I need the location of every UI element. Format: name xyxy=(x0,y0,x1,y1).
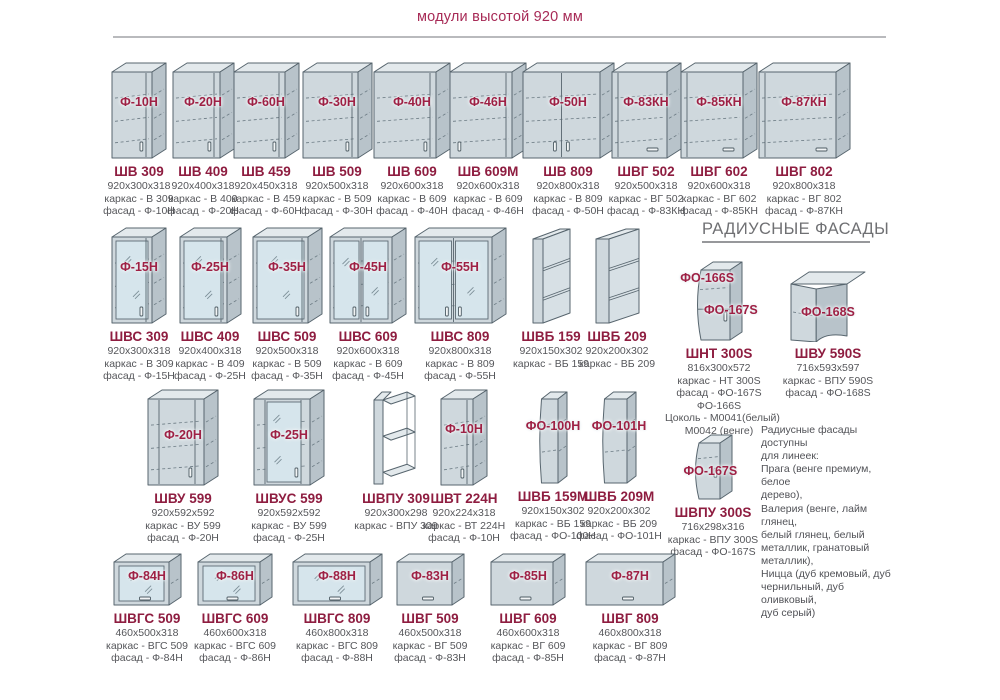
module-spec-line: 460x500x318 xyxy=(376,627,484,640)
cabinet-illustration: Ф-87Н xyxy=(576,552,684,607)
module-card: Ф-85НШВГ 609460x600x318каркас - ВГ 609фа… xyxy=(474,552,582,665)
module-code: ШВБ 209 xyxy=(563,329,671,344)
module-spec-line: фасад - ФО-168S xyxy=(774,387,882,400)
facade-label: Ф-88Н xyxy=(318,569,356,583)
module-spec-line: каркас - ВГ 809 xyxy=(576,640,684,653)
module-specs: 460x800x318каркас - ВГС 809фасад - Ф-88Н xyxy=(283,627,391,665)
header-divider xyxy=(113,36,886,38)
module-code: ШВГС 609 xyxy=(181,611,289,626)
note-line: металлик, гранатовый xyxy=(761,542,901,555)
module-card: ФО-167SШВПУ 300S716x298x316каркас - ВПУ … xyxy=(659,413,767,559)
module-spec-line: фасад - Ф-83Н xyxy=(376,652,484,665)
module-spec-line: ФО-166S xyxy=(665,400,773,413)
facade-label: Ф-25Н xyxy=(191,260,229,274)
cabinet-illustration: ФО-168S xyxy=(774,252,882,342)
module-card: Ф-87НШВГ 809460x800x318каркас - ВГ 809фа… xyxy=(576,552,684,665)
note-line: для линеек: xyxy=(761,450,901,463)
module-spec-line: 460x600x318 xyxy=(474,627,582,640)
note-line: Радиусные фасады доступны xyxy=(761,424,901,450)
facade-label: ФО-168S xyxy=(801,305,855,319)
facade-label: Ф-15Н xyxy=(120,260,158,274)
facade-label: Ф-60Н xyxy=(247,95,285,109)
facade-label: Ф-87КН xyxy=(781,95,826,109)
module-card: Ф-25НШВУС 599920x592x592каркас - ВУ 599ф… xyxy=(235,385,343,545)
facade-label: Ф-45Н xyxy=(349,260,387,274)
module-spec-line: каркас - ВБ 209 xyxy=(565,518,673,531)
module-spec-line: 816x300x572 xyxy=(665,362,773,375)
module-spec-line: каркас - ВПУ 300S xyxy=(659,534,767,547)
module-code: ШВУ 599 xyxy=(129,491,237,506)
facade-label: Ф-87Н xyxy=(611,569,649,583)
module-card: ШВБ 209920x200x302каркас - ВБ 209 xyxy=(563,225,671,370)
module-spec-line: 460x600x318 xyxy=(181,627,289,640)
module-spec-line: 460x800x318 xyxy=(283,627,391,640)
module-code: ШВПУ 300S xyxy=(659,505,767,520)
note-line: Валерия (венге, лайм глянец, xyxy=(761,503,901,529)
cabinet-illustration: ФО-166SФО-167S xyxy=(665,252,773,342)
cabinet-illustration: Ф-86Н xyxy=(181,552,289,607)
module-spec-line: каркас - ВГС 609 xyxy=(181,640,289,653)
note-line: металлик), xyxy=(761,555,901,568)
note-line: дерево), xyxy=(761,489,901,502)
catalog-page: { "header": { "title": "модули высотой 9… xyxy=(0,0,1000,700)
cabinet-glass-double-door-icon xyxy=(328,226,408,325)
facade-label: ФО-167S xyxy=(704,303,758,317)
module-spec-line: каркас - ВУ 599 xyxy=(235,520,343,533)
note-line: белый глянец, белый xyxy=(761,529,901,542)
module-spec-line: 920x592x592 xyxy=(129,507,237,520)
module-spec-line: каркас - НТ 300S xyxy=(665,375,773,388)
module-code: ШВУС 599 xyxy=(235,491,343,506)
module-spec-line: фасад - Ф-55Н xyxy=(406,370,514,383)
module-spec-line: каркас - ВГ 609 xyxy=(474,640,582,653)
facade-label: Ф-85Н xyxy=(509,569,547,583)
module-spec-line: фасад - Ф-86Н xyxy=(181,652,289,665)
module-spec-line: 920x200x302 xyxy=(565,505,673,518)
module-specs: 920x800x318каркас - ВГ 802фасад - Ф-87КН xyxy=(750,180,858,218)
module-spec-line: фасад - Ф-25Н xyxy=(235,532,343,545)
module-spec-line: 920x200x302 xyxy=(563,345,671,358)
module-code: ШНТ 300S xyxy=(665,346,773,361)
module-spec-line: каркас - ВПУ 590S xyxy=(774,375,882,388)
note-line: чернильный, дуб оливковый, xyxy=(761,581,901,607)
cabinet-illustration: Ф-87КН xyxy=(750,58,858,160)
module-spec-line: фасад - Ф-20Н xyxy=(129,532,237,545)
cabinet-glass-double-door-icon xyxy=(413,226,508,325)
note-line: дуб серый) xyxy=(761,607,901,620)
module-card: Ф-88НШВГС 809460x800x318каркас - ВГС 809… xyxy=(283,552,391,665)
radius-availability-note: Радиусные фасады доступныдля линеек:Праг… xyxy=(761,424,901,620)
facade-label: Ф-83КН xyxy=(623,95,668,109)
module-code: ШВГ 609 xyxy=(474,611,582,626)
module-card: Ф-83НШВГ 509460x500x318каркас - ВГ 509фа… xyxy=(376,552,484,665)
module-spec-line: фасад - Ф-87Н xyxy=(576,652,684,665)
note-line: Прага (венге премиум, белое xyxy=(761,463,901,489)
module-spec-line: каркас - ВУ 599 xyxy=(129,520,237,533)
module-specs: 920x592x592каркас - ВУ 599фасад - Ф-20Н xyxy=(129,507,237,545)
facade-label: Ф-25Н xyxy=(270,428,308,442)
facade-label: Ф-35Н xyxy=(268,260,306,274)
module-spec-line: фасад - Ф-88Н xyxy=(283,652,391,665)
module-spec-line: 716x593x597 xyxy=(774,362,882,375)
facade-label: Ф-40Н xyxy=(393,95,431,109)
module-spec-line: 920x592x592 xyxy=(235,507,343,520)
cabinet-door-horizontal-handle-icon xyxy=(757,61,852,160)
facade-label: Ф-10Н xyxy=(445,422,483,436)
module-card: ФО-166SФО-167SШНТ 300S816x300x572каркас … xyxy=(665,252,773,438)
facade-label: Ф-84Н xyxy=(128,569,166,583)
module-specs: 920x200x302каркас - ВБ 209 xyxy=(563,345,671,370)
module-specs: 920x592x592каркас - ВУ 599фасад - Ф-25Н xyxy=(235,507,343,545)
cabinet-illustration: Ф-85Н xyxy=(474,552,582,607)
cabinet-door-horizontal-handle-icon xyxy=(679,61,759,160)
module-code: ШВГ 809 xyxy=(576,611,684,626)
page-title: модули высотой 920 мм xyxy=(0,9,1000,25)
cabinet-illustration: ФО-167S xyxy=(659,413,767,501)
cabinet-illustration: Ф-83Н xyxy=(376,552,484,607)
facade-label: Ф-50Н xyxy=(549,95,587,109)
cabinet-open-shelves-icon xyxy=(594,227,641,325)
module-spec-line: фасад - Ф-87КН xyxy=(750,205,858,218)
module-spec-line: каркас - ВБ 209 xyxy=(563,358,671,371)
module-spec-line: 460x800x318 xyxy=(576,627,684,640)
cabinet-illustration: Ф-88Н xyxy=(283,552,391,607)
facade-label: ФО-166S xyxy=(680,271,734,285)
module-spec-line: 920x800x318 xyxy=(750,180,858,193)
facade-label: Ф-86Н xyxy=(216,569,254,583)
cabinet-illustration: Ф-25Н xyxy=(235,385,343,487)
module-code: ШВУ 590S xyxy=(774,346,882,361)
cabinet-illustration: Ф-20Н xyxy=(129,385,237,487)
facade-label: Ф-55Н xyxy=(441,260,479,274)
module-card: Ф-20НШВУ 599920x592x592каркас - ВУ 599фа… xyxy=(129,385,237,545)
module-specs: 716x593x597каркас - ВПУ 590Sфасад - ФО-1… xyxy=(774,362,882,400)
cabinet-single-door-icon xyxy=(439,388,489,487)
module-card: ФО-101НШВБ 209М920x200x302каркас - ВБ 20… xyxy=(565,385,673,543)
module-specs: 460x800x318каркас - ВГ 809фасад - Ф-87Н xyxy=(576,627,684,665)
radius-section-heading: РАДИУСНЫЕ ФАСАДЫ xyxy=(702,220,870,243)
module-spec-line: каркас - ВГ 509 xyxy=(376,640,484,653)
module-card: ФО-168SШВУ 590S716x593x597каркас - ВПУ 5… xyxy=(774,252,882,400)
module-specs: 460x600x318каркас - ВГ 609фасад - Ф-85Н xyxy=(474,627,582,665)
facade-label: Ф-20Н xyxy=(164,428,202,442)
module-code: ШВГ 802 xyxy=(750,164,858,179)
facade-label: ФО-167S xyxy=(683,464,737,478)
module-specs: 460x500x318каркас - ВГ 509фасад - Ф-83Н xyxy=(376,627,484,665)
facade-label: Ф-46Н xyxy=(469,95,507,109)
facade-label: Ф-83Н xyxy=(411,569,449,583)
module-spec-line: фасад - ФО-167S xyxy=(665,387,773,400)
cabinet-radius-facade-narrow-icon xyxy=(538,390,569,485)
module-spec-line: фасад - ФО-101Н xyxy=(565,530,673,543)
module-code: ШВБ 209М xyxy=(565,489,673,504)
module-specs: 920x200x302каркас - ВБ 209фасад - ФО-101… xyxy=(565,505,673,543)
facade-label: Ф-85КН xyxy=(696,95,741,109)
cabinet-glass-door-icon xyxy=(251,226,324,325)
facade-label: Ф-30Н xyxy=(318,95,356,109)
module-spec-line: каркас - ВГ 802 xyxy=(750,193,858,206)
module-card: Ф-87КНШВГ 802920x800x318каркас - ВГ 802ф… xyxy=(750,58,858,218)
module-specs: 460x600x318каркас - ВГС 609фасад - Ф-86Н xyxy=(181,627,289,665)
cabinet-illustration: ФО-101Н xyxy=(565,385,673,485)
module-code: ШВГС 809 xyxy=(283,611,391,626)
module-card: Ф-86НШВГС 609460x600x318каркас - ВГС 609… xyxy=(181,552,289,665)
module-code: ШВГ 509 xyxy=(376,611,484,626)
module-spec-line: фасад - Ф-85Н xyxy=(474,652,582,665)
cabinet-radius-facade-narrow-icon xyxy=(601,390,638,485)
module-spec-line: каркас - ВГС 809 xyxy=(283,640,391,653)
module-spec-line: 716x298x316 xyxy=(659,521,767,534)
facade-label: ФО-101Н xyxy=(592,419,646,433)
cabinet-illustration xyxy=(563,225,671,325)
note-line: Ницца (дуб кремовый, дуб xyxy=(761,568,901,581)
